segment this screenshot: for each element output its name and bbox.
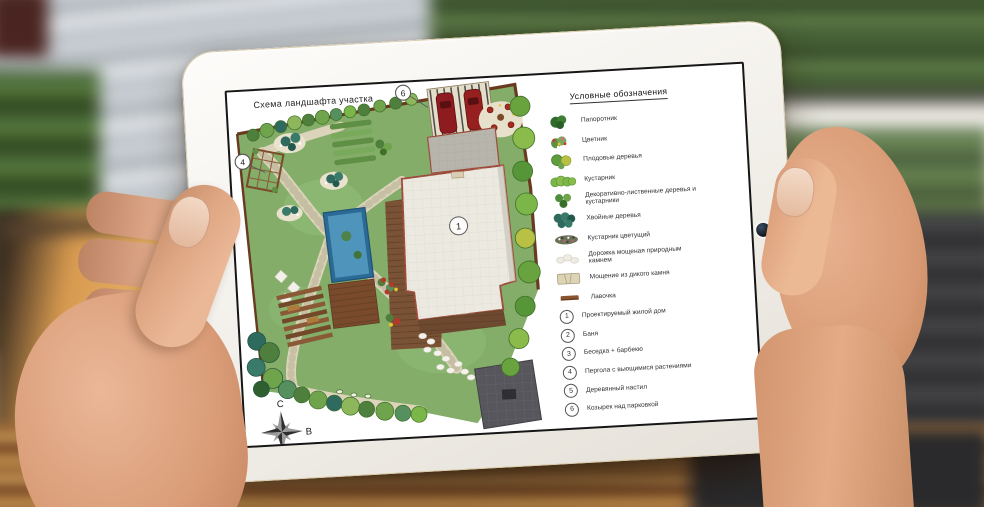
shrub-icon xyxy=(548,172,579,190)
compass-north-label: С xyxy=(277,399,285,410)
svg-text:6: 6 xyxy=(400,88,406,98)
legend-number-badge: 3 xyxy=(562,347,577,362)
legend-item-label: Хвойные деревья xyxy=(586,212,641,223)
legend-item-label: Цветник xyxy=(582,135,607,144)
fern-icon xyxy=(545,113,576,131)
legend-panel: Условные обозначения Папоротник Цветник … xyxy=(538,64,761,429)
legend-numbered-label: Беседка + барбекю xyxy=(584,346,643,357)
legend-numbered-label: Козырек над парковкой xyxy=(587,401,659,413)
marker-house: 1 xyxy=(449,216,468,235)
legend-numbered-label: Деревянный настил xyxy=(586,383,647,394)
tablet-device: Схема ландшафта участка xyxy=(180,20,803,485)
legend-numbered-label: Пергола с вьющимися растениями xyxy=(585,362,692,376)
landscape-plan: Схема ландшафта участка xyxy=(227,75,558,446)
legend-numbered-label: Проектируемый жилой дом xyxy=(582,308,666,320)
legend-number-badge: 6 xyxy=(565,402,580,417)
house xyxy=(399,165,518,337)
ornamental-trees-icon xyxy=(549,191,580,209)
flowering-shrub-icon xyxy=(551,231,582,249)
legend-item-label: Кустарник xyxy=(584,174,615,183)
legend-item-label: Дорожка мощеная природным камнем xyxy=(588,244,707,266)
legend-item-label: Кустарник цветущий xyxy=(587,231,650,242)
compass-rose: С В xyxy=(259,397,313,446)
fruit-trees-icon xyxy=(547,152,578,170)
bench-icon xyxy=(554,289,585,307)
background-blur-corner xyxy=(0,0,48,58)
legend-item-label: Мощение из дикого камня xyxy=(590,269,670,281)
legend-item-label: Лавочка xyxy=(591,292,616,301)
svg-text:4: 4 xyxy=(240,157,246,167)
compass-east-label: В xyxy=(305,426,312,437)
plan-drawing: 1 4 6 xyxy=(227,75,558,446)
stone-path-icon xyxy=(552,250,583,268)
photo-scene: Схема ландшафта участка xyxy=(0,0,984,507)
flowerbed-icon xyxy=(546,133,577,151)
conifer-icon xyxy=(550,211,581,229)
legend-item-label: Декоративно-лиственные деревья и кустарн… xyxy=(585,185,704,207)
legend-number-badge: 4 xyxy=(563,365,578,380)
legend-number-badge: 1 xyxy=(560,309,575,324)
right-forearm xyxy=(751,321,915,507)
legend-item-label: Плодовые деревья xyxy=(583,153,642,164)
legend-item-label: Папоротник xyxy=(581,115,617,125)
legend-number-badge: 2 xyxy=(561,328,576,343)
tablet-screen: Схема ландшафта участка xyxy=(225,62,764,448)
legend-numbered-label: Баня xyxy=(583,330,599,338)
legend-title: Условные обозначения xyxy=(569,86,667,104)
svg-text:1: 1 xyxy=(456,221,462,231)
wild-stone-paving-icon xyxy=(553,270,584,288)
legend-number-badge: 5 xyxy=(564,384,579,399)
